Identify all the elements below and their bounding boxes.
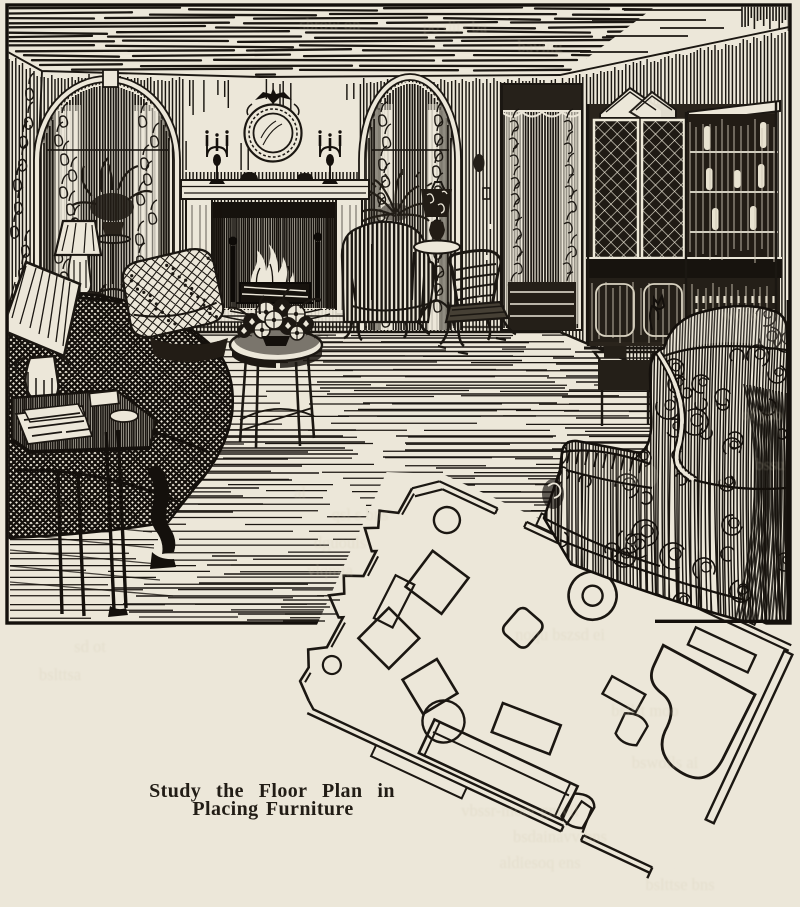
- svg-text:dguouls: dguouls: [314, 533, 366, 552]
- svg-text:bsdainavv bns: bsdainavv bns: [513, 827, 607, 846]
- svg-text:bslttsa: bslttsa: [39, 665, 82, 684]
- svg-text:vbssr-moor gnivil: vbssr-moor gnivil: [461, 801, 579, 820]
- svg-text:vlqmia: vlqmia: [307, 561, 354, 580]
- svg-text:bslttse bns: bslttse bns: [645, 875, 714, 894]
- svg-text:baving: baving: [518, 37, 563, 56]
- svg-text:po dits ba: po dits ba: [423, 17, 488, 36]
- svg-text:Placing Furniture: Placing Furniture: [192, 798, 353, 820]
- svg-text:bswolls ai: bswolls ai: [632, 753, 699, 772]
- svg-text:bssu: bssu: [755, 455, 784, 474]
- svg-text:of ysb: of ysb: [742, 405, 783, 424]
- svg-text:sd ot: sd ot: [74, 637, 106, 656]
- svg-text:worls: worls: [722, 305, 759, 324]
- svg-text:sbrow on: sbrow on: [300, 15, 361, 34]
- svg-text:noqu bszsd ei: noqu bszsd ei: [515, 625, 605, 644]
- svg-text:al: al: [294, 483, 306, 502]
- svg-text:aldiesoq ens: aldiesoq ens: [499, 853, 580, 872]
- svg-text:qsl s bns: qsl s bns: [332, 505, 389, 524]
- svg-text:bsllft moo: bsllft moo: [611, 701, 678, 720]
